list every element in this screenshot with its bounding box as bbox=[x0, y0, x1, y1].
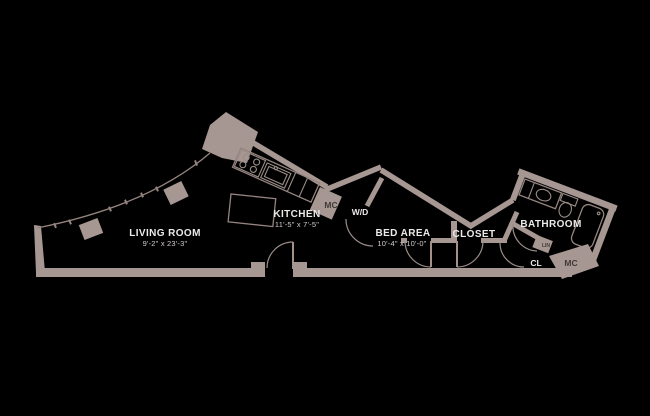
living-room-dims: 9'-2" x 23'-3" bbox=[143, 239, 188, 248]
floorplan-canvas: LIVING ROOM 9'-2" x 23'-3" bbox=[0, 0, 650, 416]
living-room: LIVING ROOM 9'-2" x 23'-3" bbox=[34, 112, 293, 277]
kitchen-island-icon bbox=[228, 194, 276, 227]
column-icon bbox=[79, 218, 103, 240]
large-column-icon bbox=[202, 112, 258, 163]
bed-top-wall bbox=[381, 170, 471, 226]
closet-door-arc bbox=[457, 241, 483, 267]
bath-closet-label: CL bbox=[530, 258, 541, 268]
entry-jamb-left bbox=[251, 262, 265, 269]
bath-mech-label: MC bbox=[564, 258, 577, 268]
closet-back-wall bbox=[469, 200, 513, 227]
bathroom-top-wall bbox=[517, 168, 617, 211]
washer-dryer-label: W/D bbox=[352, 207, 369, 217]
entry-jamb-right bbox=[293, 262, 307, 269]
column-icon bbox=[163, 181, 188, 205]
wd-nook-wall bbox=[325, 167, 381, 190]
cl-door-arc bbox=[500, 243, 524, 267]
entry-door-arc bbox=[267, 242, 293, 268]
closet-label: CLOSET bbox=[453, 229, 496, 240]
bottom-wall-right bbox=[293, 268, 572, 277]
toilet-icon bbox=[555, 193, 578, 219]
sink-icon bbox=[261, 163, 291, 189]
kitchen: MC W/D KITCHEN 11'-5" x 7'-5" bbox=[228, 138, 381, 246]
counter-divider bbox=[287, 172, 296, 191]
linen-label: LIN bbox=[542, 243, 550, 249]
kitchen-wall bbox=[245, 138, 327, 187]
left-wall bbox=[34, 225, 45, 273]
bottom-wall-left bbox=[36, 268, 265, 277]
counter-divider bbox=[299, 178, 308, 197]
living-room-label: LIVING ROOM bbox=[129, 228, 201, 239]
kitchen-dims: 11'-5" x 7'-5" bbox=[275, 220, 319, 229]
kitchen-door-arc bbox=[346, 219, 373, 246]
kitchen-mech-label: MC bbox=[324, 200, 337, 210]
bathroom-label: BATHROOM bbox=[520, 219, 581, 230]
bed-area-dims: 10'-4" x 10'-0" bbox=[377, 239, 426, 248]
bed-wall-stub bbox=[367, 178, 382, 206]
kitchen-label: KITCHEN bbox=[273, 209, 320, 220]
bathroom: BATHROOM LIN CL MC bbox=[498, 168, 617, 279]
bed-area-label: BED AREA bbox=[375, 228, 430, 239]
floorplan: LIVING ROOM 9'-2" x 23'-3" bbox=[0, 0, 650, 416]
